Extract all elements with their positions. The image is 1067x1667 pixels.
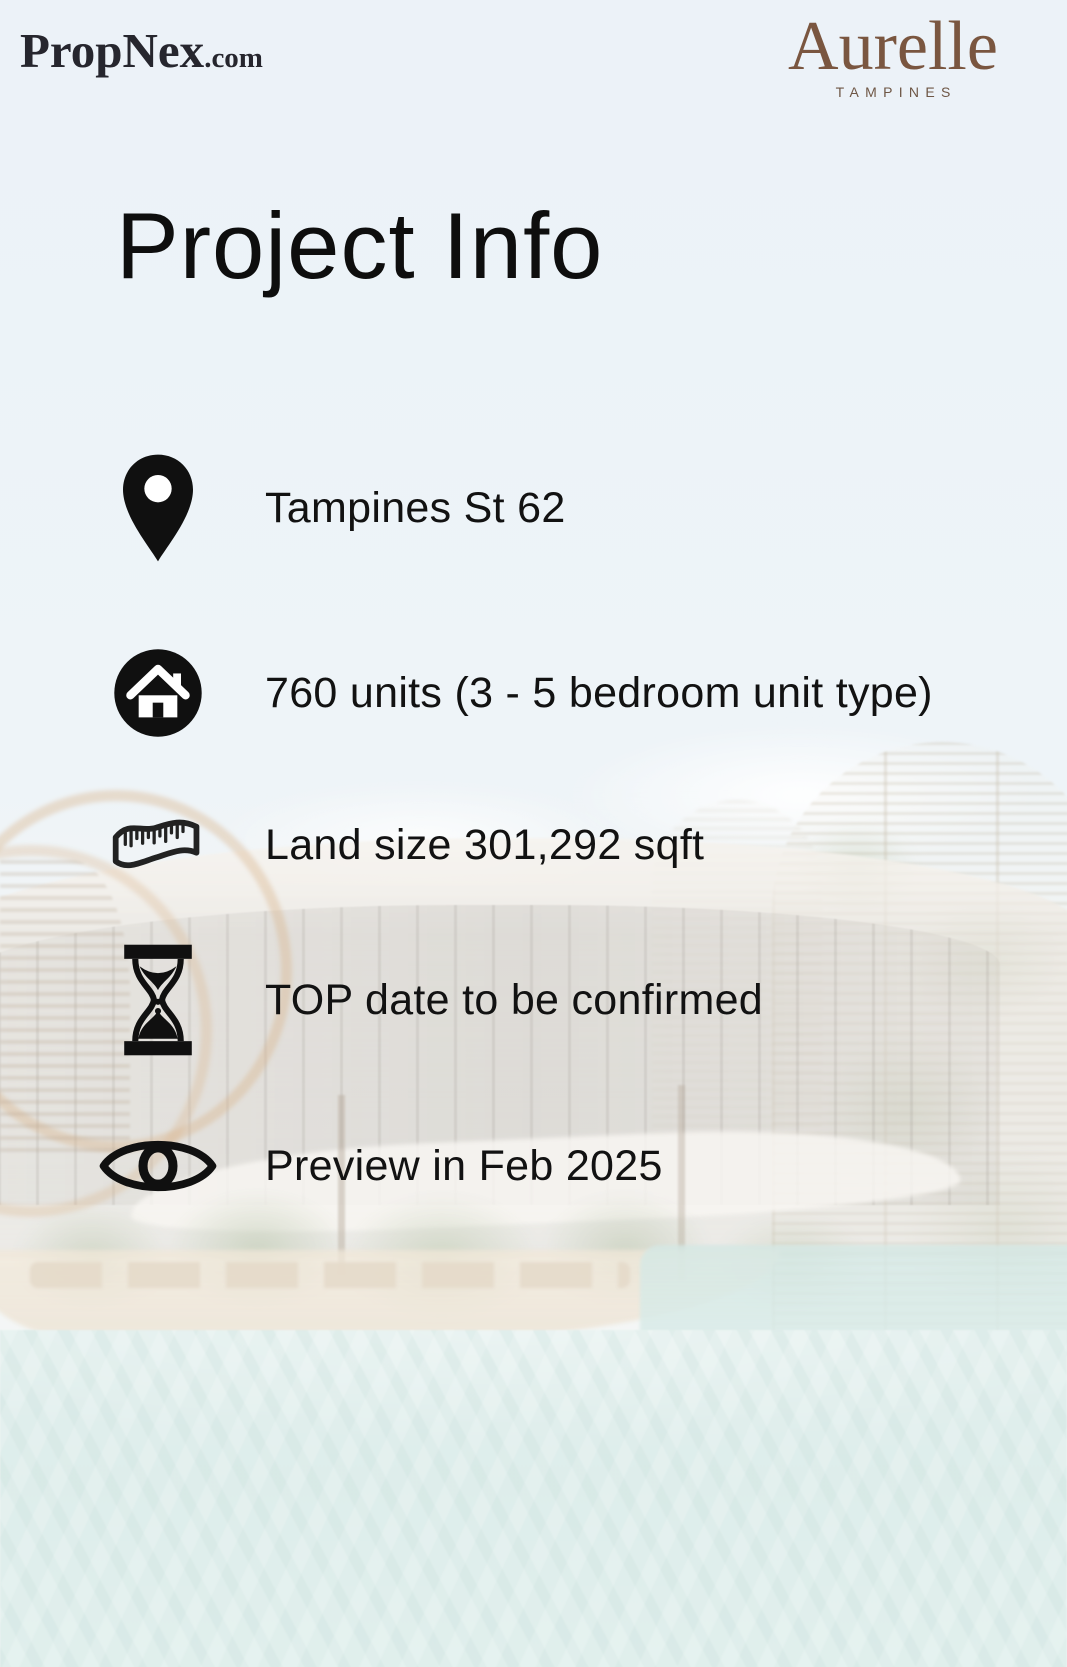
- info-label: TOP date to be confirmed: [265, 976, 763, 1025]
- project-info-flyer: PropNex.com Aurelle TAMPINES Project Inf…: [0, 0, 1067, 1667]
- location-pin-icon: [97, 450, 219, 566]
- home-icon: [97, 647, 219, 739]
- propnex-logo: PropNex.com: [20, 22, 263, 79]
- info-row-location: Tampines St 62: [97, 450, 1037, 566]
- info-label: Land size 301,292 sqft: [265, 821, 704, 870]
- aurelle-logo: Aurelle TAMPINES: [743, 10, 1043, 100]
- measuring-tape-icon: [97, 809, 219, 881]
- eye-icon: [97, 1127, 219, 1205]
- info-row-land-size: Land size 301,292 sqft: [97, 809, 1037, 881]
- info-label: Preview in Feb 2025: [265, 1142, 663, 1191]
- aurelle-wordmark: Aurelle: [743, 10, 1043, 84]
- page-title: Project Info: [116, 192, 603, 300]
- propnex-tld: .com: [204, 42, 263, 74]
- propnex-wordmark: PropNex: [20, 23, 204, 78]
- info-label: 760 units (3 - 5 bedroom unit type): [265, 669, 933, 718]
- info-row-units: 760 units (3 - 5 bedroom unit type): [97, 647, 1037, 739]
- info-label: Tampines St 62: [265, 484, 566, 533]
- info-row-preview: Preview in Feb 2025: [97, 1127, 1037, 1205]
- aurelle-subtitle: TAMPINES: [743, 84, 1043, 100]
- hourglass-icon: [97, 941, 219, 1059]
- flyer-content: PropNex.com Aurelle TAMPINES Project Inf…: [0, 0, 1067, 1667]
- info-row-top-date: TOP date to be confirmed: [97, 941, 1037, 1059]
